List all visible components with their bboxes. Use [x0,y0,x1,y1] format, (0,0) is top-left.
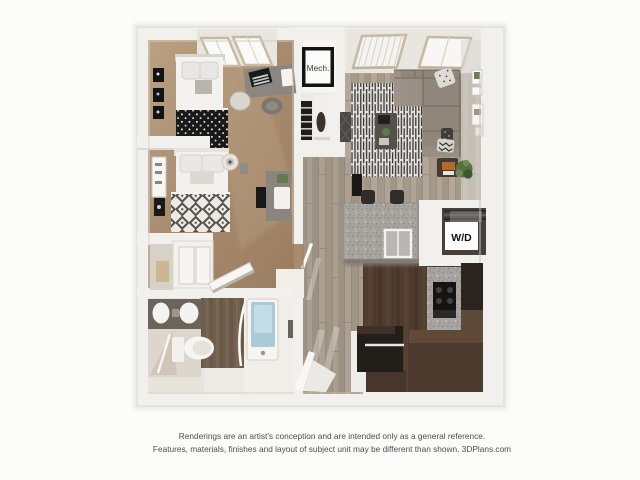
svg-text:Mech.: Mech. [307,63,330,73]
svg-text:Features, materials, finishes: Features, materials, finishes and layout… [153,444,511,454]
svg-text:Renderings are an artist's con: Renderings are an artist's conception an… [179,431,485,441]
svg-text:W/D: W/D [451,232,472,244]
